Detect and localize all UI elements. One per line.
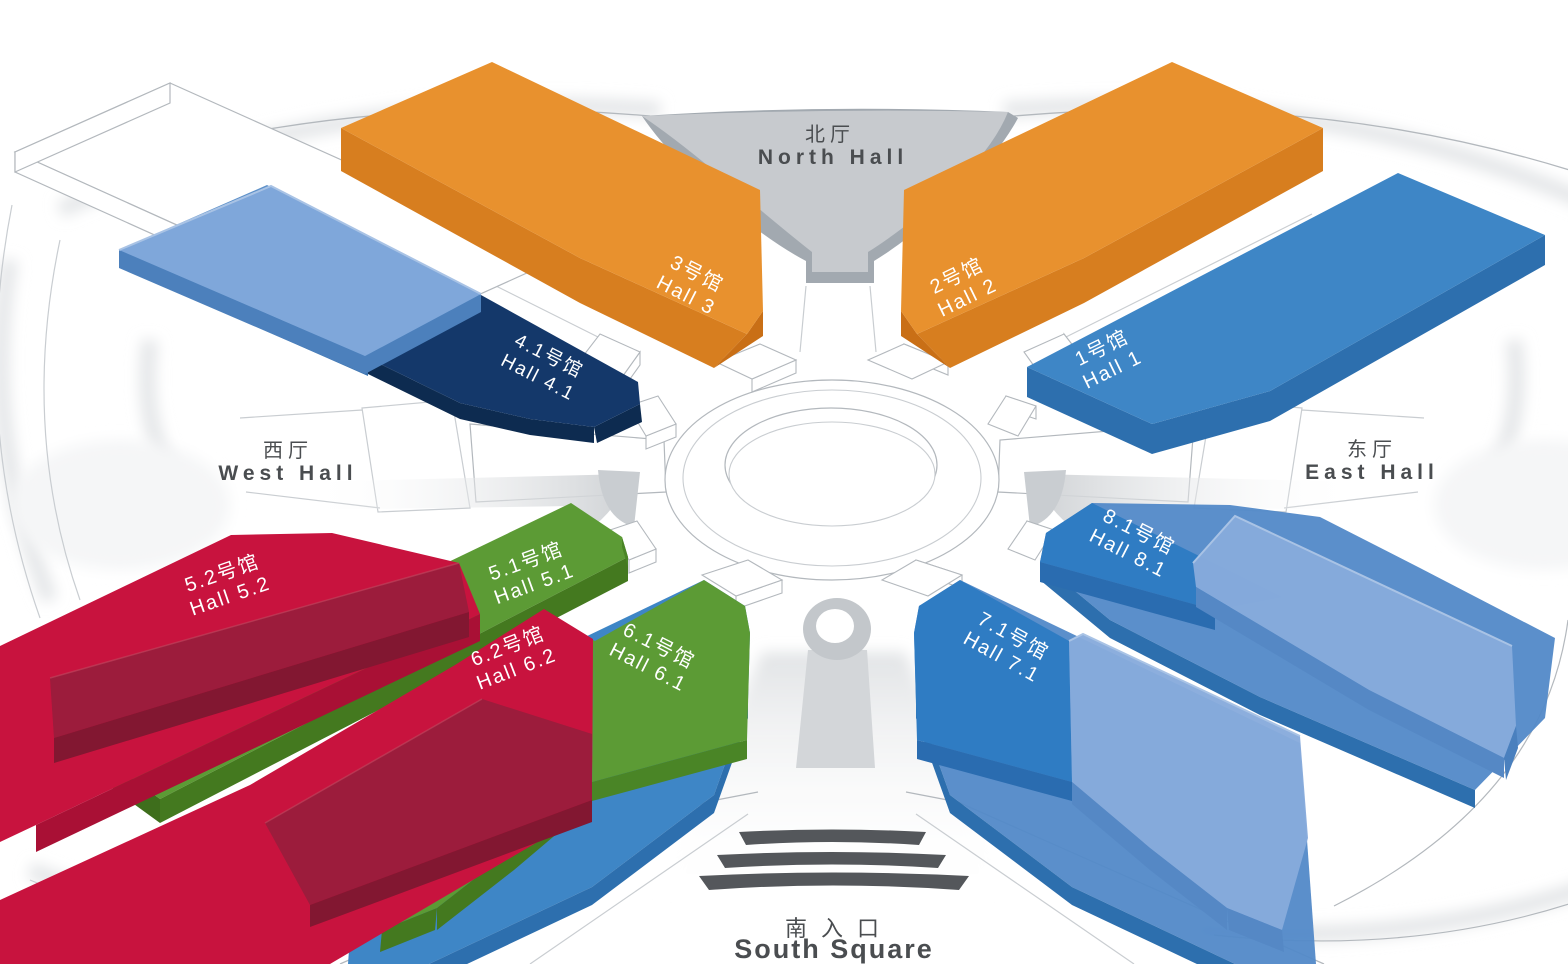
svg-text:South Square: South Square bbox=[734, 934, 934, 964]
svg-text:East Hall: East Hall bbox=[1305, 461, 1439, 484]
svg-text:西厅: 西厅 bbox=[263, 440, 313, 462]
svg-text:北厅: 北厅 bbox=[805, 123, 855, 146]
svg-text:North Hall: North Hall bbox=[758, 146, 908, 169]
svg-text:West Hall: West Hall bbox=[218, 462, 357, 485]
svg-text:东厅: 东厅 bbox=[1347, 438, 1397, 461]
